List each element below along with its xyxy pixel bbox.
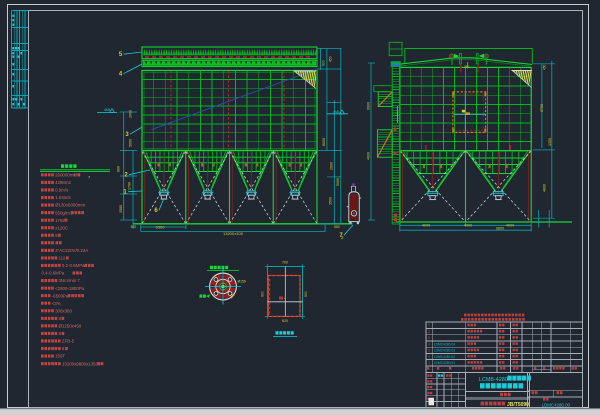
svg-text:1792: 1792 <box>55 218 65 223</box>
svg-text:550g/m3: 550g/m3 <box>55 210 73 215</box>
svg-text:4900: 4900 <box>464 224 472 228</box>
svg-text:2600: 2600 <box>329 162 333 170</box>
svg-text:700: 700 <box>282 261 288 265</box>
svg-text:2000: 2000 <box>129 110 133 118</box>
svg-text:Ø1250x450: Ø1250x450 <box>59 324 82 329</box>
svg-text:LDMC4280.03: LDMC4280.03 <box>434 349 455 353</box>
svg-text:6: 6 <box>428 330 430 334</box>
svg-text:4ML: 4ML <box>333 110 340 114</box>
svg-text:3Nm/min 7: 3Nm/min 7 <box>59 278 81 283</box>
svg-text:Ø130x6000mm: Ø130x6000mm <box>55 203 85 208</box>
svg-text:260000m3/h: 260000m3/h <box>55 173 80 178</box>
svg-text:JB/T5090: JB/T5090 <box>507 402 529 408</box>
svg-text:150T: 150T <box>55 354 65 359</box>
svg-text:3500: 3500 <box>328 197 332 205</box>
svg-text:4800: 4800 <box>543 184 547 192</box>
svg-text:5000: 5000 <box>336 178 340 186</box>
svg-text:≤120C: ≤120C <box>55 225 68 230</box>
svg-text:5: 5 <box>428 336 430 340</box>
svg-text:<2500-1800Pa: <2500-1800Pa <box>55 286 84 291</box>
svg-text:1350: 1350 <box>548 138 552 146</box>
svg-text:1.03m/s: 1.03m/s <box>55 195 71 200</box>
svg-text:4900: 4900 <box>422 224 430 228</box>
svg-text:8700: 8700 <box>540 104 544 112</box>
svg-text:4900: 4900 <box>506 224 514 228</box>
svg-text:450: 450 <box>329 56 333 62</box>
svg-text:3300: 3300 <box>156 224 166 229</box>
svg-text:9800: 9800 <box>496 226 504 230</box>
svg-text:800: 800 <box>117 166 121 172</box>
svg-text:3"AC220V/0.23A: 3"AC220V/0.23A <box>55 248 88 253</box>
svg-text:0.9m/s: 0.9m/s <box>55 188 69 193</box>
svg-text:LDMC4280.02: LDMC4280.02 <box>434 355 455 359</box>
svg-text:900: 900 <box>322 60 326 66</box>
svg-text:LDMC4280.04: LDMC4280.04 <box>434 342 455 346</box>
svg-text:0.4-0.6MPa: 0.4-0.6MPa <box>42 271 65 276</box>
svg-text:450: 450 <box>543 64 547 70</box>
svg-text:8000: 8000 <box>322 138 326 146</box>
svg-text:250: 250 <box>464 65 470 69</box>
svg-text:-6500Pa: -6500Pa <box>52 293 69 298</box>
svg-text:3: 3 <box>428 349 430 353</box>
svg-text:4288m2: 4288m2 <box>55 180 71 185</box>
svg-text:900: 900 <box>261 291 265 297</box>
svg-text:ZFB-5: ZFB-5 <box>62 339 75 344</box>
svg-text:4: 4 <box>428 342 430 346</box>
svg-text:Ø159: Ø159 <box>238 280 246 284</box>
svg-text:4000: 4000 <box>367 152 371 160</box>
svg-text:900: 900 <box>304 291 308 297</box>
svg-text:13200±100: 13200±100 <box>223 231 244 236</box>
svg-text:1700: 1700 <box>128 182 132 190</box>
svg-text:3500: 3500 <box>119 205 123 213</box>
svg-text:1: 1 <box>428 361 430 365</box>
svg-text:LDMC4280.00: LDMC4280.00 <box>542 402 571 407</box>
svg-text:300x380: 300x380 <box>55 308 72 313</box>
svg-text:550: 550 <box>334 225 340 229</box>
svg-text:7: 7 <box>428 324 430 328</box>
svg-text:112: 112 <box>59 256 67 261</box>
svg-text:620: 620 <box>282 319 288 323</box>
svg-text:550: 550 <box>131 225 137 229</box>
svg-text:<3%: <3% <box>52 301 61 306</box>
svg-text:13200x9800x13500: 13200x9800x13500 <box>62 361 101 366</box>
svg-text:0.2-0.6MPa: 0.2-0.6MPa <box>62 263 85 268</box>
svg-text:6000: 6000 <box>367 102 371 110</box>
svg-text:5600: 5600 <box>129 139 133 147</box>
svg-text:2: 2 <box>428 355 430 359</box>
svg-text:LCMB-4280: LCMB-4280 <box>479 377 508 383</box>
svg-text:LDMC4280.01: LDMC4280.01 <box>434 361 455 365</box>
